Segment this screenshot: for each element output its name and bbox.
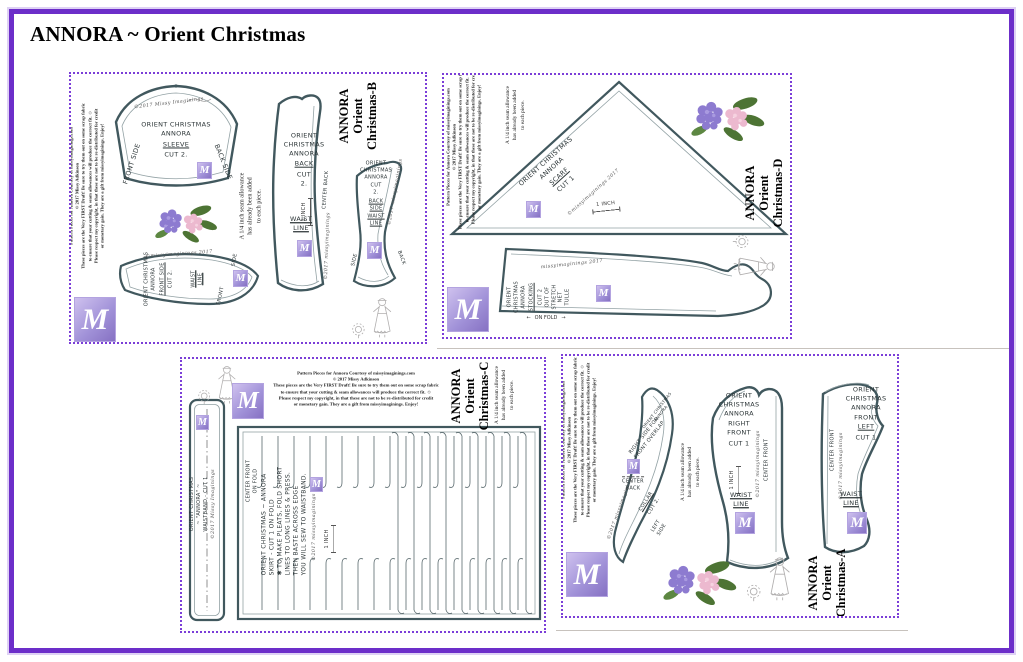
waistband-piece-label: ORIENT CHRISTMAS~ "ANNORA" ~WAISTBAND - … bbox=[189, 469, 217, 539]
missyimaginings-logo-stamp: M bbox=[232, 383, 264, 419]
copyright-note: Pattern Pieces for Annora Courtesy of mi… bbox=[273, 370, 439, 407]
waist-line-label: WAISTLINE bbox=[840, 490, 862, 508]
missyimaginings-logo-stamp: M bbox=[233, 270, 248, 287]
seam-allowance-note: A 1/4 inch seam allowancehas already bee… bbox=[680, 443, 702, 501]
sheet-title-b: ANNORAOrientChristmas-B bbox=[337, 82, 379, 150]
missyimaginings-logo-stamp: M bbox=[566, 552, 608, 597]
sheet-title-a: ANNORAOrientChristmas-A bbox=[806, 549, 848, 618]
pattern-sheet-a: M M M M Pattern Pieces for Annora Courte… bbox=[561, 354, 899, 618]
missyimaginings-logo-stamp: M bbox=[847, 512, 867, 534]
missyimaginings-logo-stamp: M bbox=[197, 162, 212, 179]
signature: ©2017 missyimaginings bbox=[756, 430, 762, 497]
center-front-label: CENTER FRONT bbox=[830, 429, 837, 471]
waist-line-label: WAISTLINE bbox=[190, 270, 204, 287]
hydrangea-flowers-image bbox=[656, 554, 741, 610]
on-fold-marker: ← ON FOLD → bbox=[526, 315, 565, 321]
page-title: ANNORA ~ Orient Christmas bbox=[30, 22, 306, 47]
right-front-piece-label: ORIENTCHRISTMASANNORA RIGHTFRONT CUT 1 bbox=[719, 392, 760, 449]
doll-sketch-icon bbox=[745, 554, 801, 604]
hydrangea-flowers-image bbox=[149, 200, 221, 246]
copyright-note: Pattern Pieces for Annora Courtesy of mi… bbox=[445, 73, 482, 230]
missyimaginings-logo-stamp: M bbox=[447, 287, 489, 332]
seam-allowance-note: A 1/4 inch seam allowancehas already bee… bbox=[494, 366, 516, 424]
inch-scale: 1 INCH bbox=[729, 466, 741, 494]
missyimaginings-logo-stamp: M bbox=[367, 242, 382, 259]
copyright-note: Pattern Pieces for Annora Courtesy of mi… bbox=[561, 357, 598, 523]
sleeve-piece-label: ORIENT CHRISTMASANNORA SLEEVE CUT 2. bbox=[141, 120, 211, 159]
center-front-on-fold-label: CENTER FRONTON FOLD bbox=[245, 460, 259, 502]
missyimaginings-logo-stamp: M bbox=[627, 459, 640, 474]
doll-sketch-icon bbox=[731, 232, 777, 288]
pattern-sheet-c: M M M Pattern Pieces for Annora Courtesy… bbox=[180, 357, 546, 633]
scanned-pattern-page: ANNORA ~ Orient Christmas bbox=[0, 0, 1023, 662]
waist-line-label: WAISTLINE bbox=[730, 491, 752, 509]
skirt-piece-label: ORIENT CHRISTMAS ~ ANNORASKIRT - CUT 1 O… bbox=[261, 467, 310, 576]
back-piece-label: ORIENTCHRISTMASANNORA BACK CUT2. bbox=[284, 132, 325, 189]
missyimaginings-logo-stamp: M bbox=[74, 297, 116, 342]
missyimaginings-logo-stamp: M bbox=[297, 240, 312, 257]
seam-allowance-note: A 1/4 inch seam allowancehas already bee… bbox=[505, 86, 527, 144]
pattern-sheet-d: M M M Pattern Pieces for Annora Courtesy… bbox=[442, 73, 792, 339]
stocking-piece-label: ORIENTCHRISTMASANNORA STOCKING CUT 2OUT … bbox=[507, 281, 572, 313]
missyimaginings-logo-stamp: M bbox=[735, 512, 755, 534]
front-left-piece-label: ORIENTCHRISTMASANNORA FRONTLEFT CUT 1 bbox=[846, 386, 887, 443]
copyright-note: Pattern Pieces for Annora Courtesy of mi… bbox=[69, 103, 106, 269]
inch-scale: 1 INCH bbox=[324, 525, 336, 553]
fold-arrow-right-icon: → bbox=[561, 315, 565, 321]
missyimaginings-logo-stamp: M bbox=[310, 477, 323, 492]
paper-edge-line bbox=[437, 348, 1009, 349]
doll-sketch-icon bbox=[347, 296, 405, 340]
back-side-piece-label: ORIENTCHRISTMASANNORA CUT2. BACKSIDE WAI… bbox=[360, 161, 392, 228]
hydrangea-flowers-image bbox=[684, 89, 769, 147]
center-front-label: CENTER FRONT bbox=[764, 439, 771, 481]
collar-pattern-piece bbox=[605, 384, 685, 569]
signature: ©2017 missyimaginings bbox=[312, 493, 318, 560]
pattern-sheet-b: M M M M M Pattern Pieces for Annora Cour… bbox=[69, 72, 427, 344]
seam-allowance-note: A 1/4 inch seam allowancehas already bee… bbox=[238, 173, 263, 240]
sheet-title-d: ANNORAOrientChristmas-D bbox=[743, 159, 785, 228]
missyimaginings-logo-stamp: M bbox=[196, 415, 209, 430]
missyimaginings-logo-stamp: M bbox=[596, 285, 611, 302]
paper-edge-line bbox=[556, 630, 908, 631]
sheet-title-c: ANNORAOrientChristmas-C bbox=[449, 362, 491, 431]
on-fold-label: ON FOLD bbox=[535, 315, 558, 321]
fold-arrow-left-icon: ← bbox=[526, 315, 530, 321]
waist-line-label: WAISTLINE bbox=[290, 215, 312, 233]
